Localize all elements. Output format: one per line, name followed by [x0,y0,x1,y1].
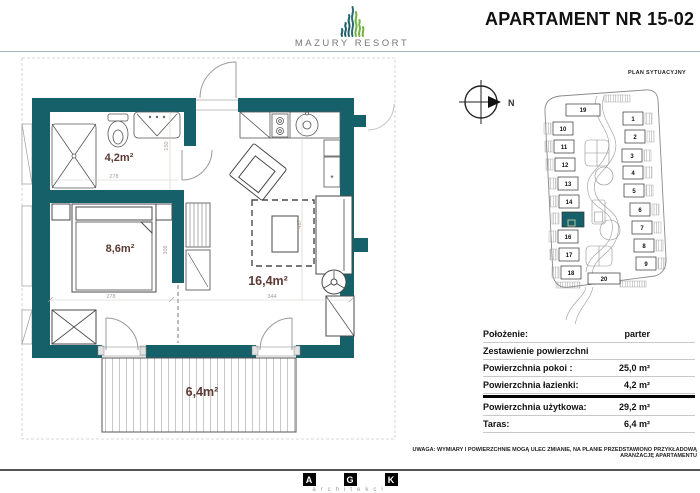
siteplan-title: PLAN SYTUACYJNY [628,70,686,76]
building-15-highlighted [562,212,584,227]
svg-text:10: 10 [560,127,567,133]
agk-subtitle: architekci [0,487,700,493]
row-label: Taras: [483,419,509,430]
table-row: Powierzchnia łazienki: 4,2 m² [483,377,695,394]
svg-text:13: 13 [565,182,572,188]
svg-text:17: 17 [566,253,573,259]
armchair [229,143,287,200]
svg-text:14: 14 [566,200,573,206]
brand-name: MAZURY RESORT [288,38,416,49]
svg-text:18: 18 [568,271,575,277]
dim-living-width: 344 [267,294,276,300]
row-label: Zestawienie powierzchni [483,346,589,357]
row-value: 6,4 m² [595,419,650,430]
site-features [585,140,620,266]
row-value: 4,2 m² [595,380,650,391]
row-label: Powierzchnia łazienki: [483,380,579,391]
bathroom-area-label: 4,2m² [105,152,134,164]
boiler-symbol: * [330,174,333,183]
table-row: Zestawienie powierzchni [483,343,695,360]
agk-logo: A G K [0,473,700,486]
dim-bathroom-width: 278 [109,174,118,180]
compass-north-label: N [508,98,515,108]
site-plan: 1 2 3 4 5 6 7 8 9 10 11 12 13 14 16 17 1… [528,82,700,332]
svg-text:16: 16 [565,235,572,241]
svg-text:12: 12 [562,163,569,169]
row-value: parter [595,329,650,340]
row-label: Położenie: [483,329,528,340]
agk-letter-g: G [344,473,357,486]
row-label: Powierzchnia pokoi : [483,363,573,374]
agk-letter-k: K [385,473,398,486]
nightstand-left [52,204,70,220]
table-thick-divider [483,395,695,398]
table-row: Powierzchnia pokoi : 25,0 m² [483,360,695,377]
coffee-table [272,216,298,252]
table-row: Taras: 6,4 m² [483,416,695,433]
svg-text:20: 20 [601,277,608,283]
dim-bedroom-depth: 309 [163,245,169,254]
svg-text:11: 11 [561,145,568,151]
sofa [316,196,352,274]
floor-plan: * [18,55,398,445]
compass-icon: N [455,76,525,128]
row-label: Powierzchnia użytkowa: [483,402,587,413]
dim-bedroom-width: 278 [106,294,115,300]
partition-furniture [186,203,210,290]
toilet-tank [108,114,128,121]
page-title: APARTAMENT NR 15-02 [485,9,694,30]
table-row: Położenie: parter [483,326,695,343]
footer-divider [0,469,700,471]
bedroom-area-label: 8,6m² [106,243,135,255]
nightstand-right [156,204,172,220]
mazury-resort-tree-icon [333,2,373,38]
header-divider [0,51,700,52]
dim-bathroom-depth: 150 [164,141,170,150]
neighbor-fixtures [22,124,32,344]
row-value: 25,0 m² [595,363,650,374]
svg-text:19: 19 [580,108,587,114]
terrace-area-label: 6,4m² [186,385,219,399]
table-row: Powierzchnia użytkowa: 29,2 m² [483,399,695,416]
cabinet [324,140,340,156]
pillows [76,207,152,220]
page: MAZURY RESORT APARTAMENT NR 15-02 [0,0,700,493]
living-area-label: 16,4m² [248,274,288,288]
row-value: 29,2 m² [595,402,650,413]
area-table: Położenie: parter Zestawienie powierzchn… [483,326,695,433]
dim-living-depth: 487 [297,219,303,228]
agk-letter-a: A [303,473,316,486]
disclaimer-text: UWAGA: WYMIARY I POWIERZCHNIE MOGĄ ULEC … [387,447,697,459]
bedroom-furniture [52,204,172,344]
